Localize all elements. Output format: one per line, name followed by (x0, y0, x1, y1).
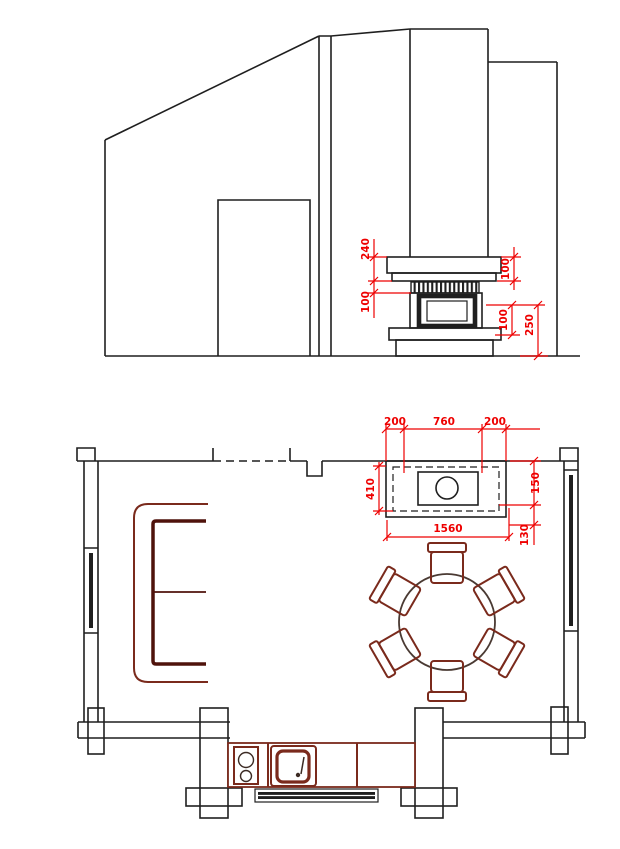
opening-ticks (213, 448, 290, 461)
kitchen-counter (228, 743, 415, 787)
fireplace-base (396, 340, 493, 356)
plan-dimensions: 200 760 200 410 150 130 1560 (365, 416, 542, 546)
corner-log-top-right (560, 448, 578, 461)
log-end-right (551, 707, 568, 754)
mantel-subshelf (392, 273, 496, 281)
grill-strip (411, 282, 479, 293)
ridge-lines (319, 36, 331, 356)
dim-label-240: 240 (360, 238, 372, 260)
dim-label-200-left: 200 (384, 416, 406, 428)
elevation-view: 240 100 100 100 250 (105, 29, 580, 360)
fireplace-elevation (387, 257, 501, 356)
log-end-left (88, 708, 104, 754)
threshold-bar (255, 789, 378, 802)
mantel-shelf (387, 257, 501, 273)
chimney-breast-lines (410, 29, 488, 257)
cad-drawing: 240 100 100 100 250 (0, 0, 620, 849)
dim-label-100-left: 100 (360, 291, 372, 313)
wall-top (77, 461, 578, 476)
door-outline (218, 200, 310, 356)
dim-label-130: 130 (519, 524, 531, 546)
dim-label-760: 760 (433, 416, 455, 428)
dim-label-150: 150 (530, 472, 542, 494)
cad-drawing-page: 240 100 100 100 250 (0, 0, 620, 849)
log-column-right (415, 708, 443, 818)
drain-dot (296, 773, 300, 777)
wall-right (564, 461, 578, 722)
wall-left (84, 461, 98, 722)
dim-label-200-right: 200 (484, 416, 506, 428)
dim-label-100-right-lower: 100 (498, 309, 510, 331)
dim-label-1560: 1560 (433, 523, 462, 535)
sofa (134, 504, 208, 682)
log-cross-right-tab (401, 788, 457, 806)
dim-label-100-right-upper: 100 (500, 258, 512, 280)
floor-plan: 200 760 200 410 150 130 1560 (77, 416, 585, 818)
dim-label-410: 410 (365, 478, 377, 500)
hearth-slab (389, 328, 501, 340)
corner-log-top-left (77, 448, 95, 461)
flue-circle (436, 477, 458, 499)
log-column-left (200, 708, 228, 818)
dining-set (369, 543, 525, 701)
sink-basin (277, 751, 309, 782)
roof-slope-line (105, 36, 319, 140)
log-cross-left-tab (186, 788, 242, 806)
dim-label-250: 250 (524, 314, 536, 336)
dining-table (399, 574, 495, 670)
